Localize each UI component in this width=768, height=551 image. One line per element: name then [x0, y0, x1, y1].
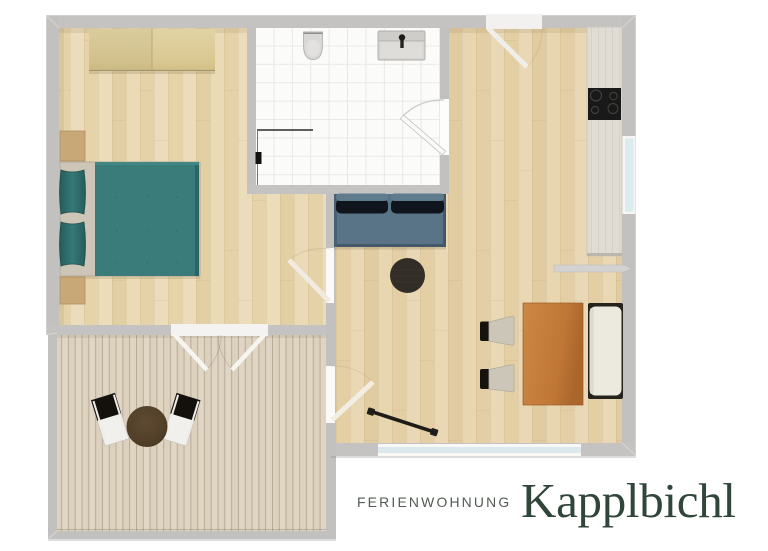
- svg-text:FERIENWOHNUNG: FERIENWOHNUNG: [357, 494, 511, 510]
- svg-text:Kapplbichl: Kapplbichl: [521, 473, 736, 528]
